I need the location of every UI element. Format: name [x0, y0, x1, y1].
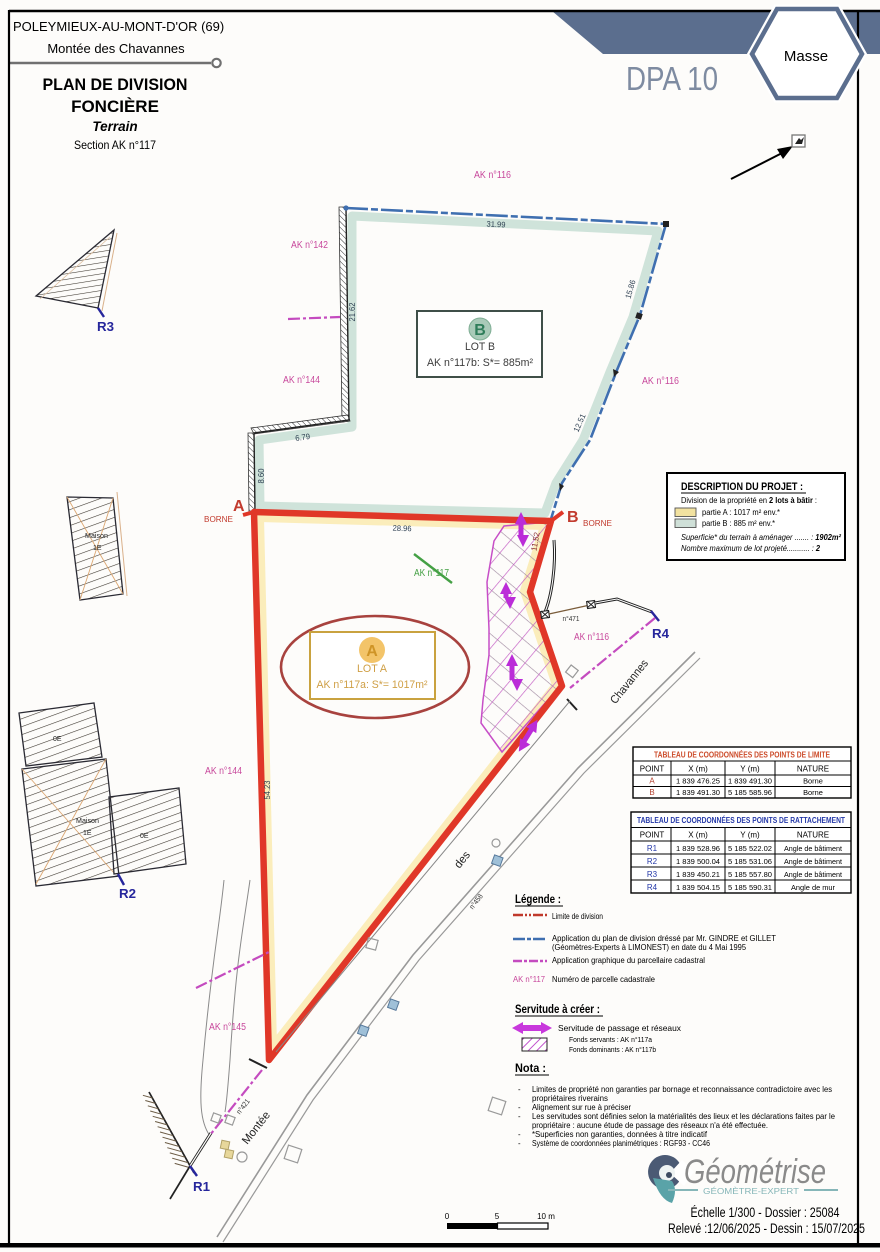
- svg-text:R1: R1: [193, 1179, 210, 1194]
- svg-text:POINT: POINT: [640, 765, 665, 774]
- svg-text:Système de coordonnées planimé: Système de coordonnées planimétriques : …: [532, 1139, 710, 1148]
- svg-text:Terrain: Terrain: [92, 119, 137, 134]
- svg-text:1 839 504.15: 1 839 504.15: [676, 883, 720, 892]
- svg-text:*Superficies non garanties, do: *Superficies non garanties, données à ti…: [532, 1130, 708, 1139]
- svg-text:Y (m): Y (m): [740, 831, 760, 840]
- svg-text:Nota :: Nota :: [515, 1063, 546, 1075]
- svg-text:R3: R3: [647, 870, 658, 879]
- svg-text:AK n°116: AK n°116: [474, 170, 511, 181]
- svg-text:31.99: 31.99: [486, 220, 506, 230]
- svg-text:Angle de bâtiment: Angle de bâtiment: [784, 857, 842, 866]
- svg-text:(Géomètres-Experts à LIMONEST): (Géomètres-Experts à LIMONEST) en date d…: [552, 943, 747, 952]
- svg-text:AK n°145: AK n°145: [209, 1022, 246, 1033]
- svg-text:Servitude à créer :: Servitude à créer :: [515, 1004, 600, 1016]
- svg-text:Angle de bâtiment: Angle de bâtiment: [784, 870, 842, 879]
- svg-text:Fonds dominants : AK n°117b: Fonds dominants : AK n°117b: [569, 1045, 656, 1054]
- svg-text:-: -: [518, 1130, 521, 1139]
- svg-text:LOT B: LOT B: [465, 341, 495, 353]
- svg-text:AK n°142: AK n°142: [291, 240, 328, 251]
- svg-text:R4: R4: [647, 883, 658, 892]
- svg-text:AK n°116: AK n°116: [574, 632, 609, 643]
- svg-text:AK n°144: AK n°144: [283, 375, 320, 386]
- svg-text:0E: 0E: [53, 736, 62, 743]
- svg-text:1 839 528.96: 1 839 528.96: [676, 844, 720, 853]
- svg-text:54.23: 54.23: [263, 780, 272, 800]
- svg-text:AK n°117a: S*= 1017m²: AK n°117a: S*= 1017m²: [317, 679, 428, 691]
- svg-text:X (m): X (m): [688, 765, 708, 774]
- svg-text:NATURE: NATURE: [797, 765, 829, 774]
- svg-text:A: A: [649, 777, 655, 786]
- svg-text:Masse: Masse: [784, 48, 828, 65]
- svg-text:partie A : 1017 m² env.*: partie A : 1017 m² env.*: [702, 508, 780, 517]
- svg-text:1 839 500.04: 1 839 500.04: [676, 857, 720, 866]
- svg-text:POINT: POINT: [640, 831, 665, 840]
- svg-text:Légende :: Légende :: [515, 894, 561, 906]
- svg-text:10 m: 10 m: [537, 1212, 555, 1221]
- svg-text:Limites de propriété non garan: Limites de propriété non garanties par b…: [532, 1085, 832, 1094]
- svg-text:5 185 531.06: 5 185 531.06: [728, 857, 772, 866]
- svg-text:1E: 1E: [93, 545, 102, 552]
- svg-text:Limite de division: Limite de division: [552, 912, 603, 921]
- svg-text:28.96: 28.96: [392, 524, 412, 534]
- svg-text:Section AK n°117: Section AK n°117: [74, 138, 156, 152]
- svg-text:LOT A: LOT A: [357, 663, 388, 675]
- svg-text:R1: R1: [647, 844, 658, 853]
- svg-text:AK n°117: AK n°117: [414, 568, 449, 579]
- svg-text:-: -: [518, 1085, 521, 1094]
- svg-text:Division de la propriété en 2: Division de la propriété en 2 lots à bât…: [681, 496, 817, 505]
- svg-text:1 839 450.21: 1 839 450.21: [676, 870, 720, 879]
- svg-text:partie B : 885 m² env.*: partie B : 885 m² env.*: [702, 519, 775, 528]
- svg-text:Maison: Maison: [85, 533, 108, 540]
- svg-text:0E: 0E: [140, 833, 149, 840]
- svg-text:FONCIÈRE: FONCIÈRE: [71, 97, 159, 116]
- svg-text:A: A: [233, 498, 245, 515]
- svg-text:PLAN DE DIVISION: PLAN DE DIVISION: [43, 75, 188, 94]
- svg-text:DPA 10: DPA 10: [626, 60, 718, 97]
- svg-text:Angle de bâtiment: Angle de bâtiment: [784, 844, 842, 853]
- svg-text:B: B: [649, 788, 654, 797]
- svg-text:Borne: Borne: [803, 788, 823, 797]
- svg-text:5 185 522.02: 5 185 522.02: [728, 844, 772, 853]
- svg-text:POLEYMIEUX-AU-MONT-D'OR (69): POLEYMIEUX-AU-MONT-D'OR (69): [13, 19, 224, 34]
- svg-text:5 185 590.31: 5 185 590.31: [728, 883, 772, 892]
- svg-text:-: -: [518, 1103, 521, 1112]
- svg-text:1 839 491.30: 1 839 491.30: [676, 788, 720, 797]
- svg-text:5 185 585.96: 5 185 585.96: [728, 788, 772, 797]
- svg-text:Les servitudes sont définies s: Les servitudes sont définies selon la ma…: [532, 1112, 835, 1121]
- svg-text:Relevé :12/06/2025 - Dessin :: Relevé :12/06/2025 - Dessin : 15/07/2025: [668, 1221, 865, 1236]
- svg-text:1 839 491.30: 1 839 491.30: [728, 777, 772, 786]
- svg-text:n°471: n°471: [563, 614, 580, 623]
- svg-text:-: -: [518, 1112, 521, 1121]
- svg-text:Maison: Maison: [76, 818, 99, 825]
- svg-text:R2: R2: [119, 886, 136, 901]
- svg-text:0: 0: [445, 1212, 450, 1221]
- svg-text:TABLEAU DE COORDONNÉES DES POI: TABLEAU DE COORDONNÉES DES POINTS DE LIM…: [654, 751, 831, 760]
- svg-text:5: 5: [495, 1212, 500, 1221]
- svg-text:DESCRIPTION DU PROJET :: DESCRIPTION DU PROJET :: [681, 481, 803, 493]
- svg-text:BORNE: BORNE: [204, 514, 233, 524]
- svg-text:A: A: [366, 643, 378, 660]
- svg-text:NATURE: NATURE: [797, 831, 829, 840]
- svg-text:1 839 476.25: 1 839 476.25: [676, 777, 720, 786]
- svg-text:Borne: Borne: [803, 777, 823, 786]
- svg-text:Servitude de passage et réseau: Servitude de passage et réseaux: [558, 1023, 682, 1033]
- svg-text:AK n°144: AK n°144: [205, 766, 242, 777]
- svg-text:Y (m): Y (m): [740, 765, 760, 774]
- svg-text:Nombre maximum de lot projeté.: Nombre maximum de lot projeté...........…: [681, 544, 821, 553]
- svg-text:AK n°117b: S*= 885m²: AK n°117b: S*= 885m²: [427, 357, 533, 369]
- svg-text:TABLEAU DE COORDONNÉES DES POI: TABLEAU DE COORDONNÉES DES POINTS DE RAT…: [637, 816, 845, 825]
- svg-text:propriétaire : aucune étude de: propriétaire : aucune étude de passage d…: [532, 1121, 768, 1130]
- svg-text:AK n°116: AK n°116: [642, 376, 679, 387]
- svg-text:BORNE: BORNE: [583, 518, 612, 528]
- svg-text:Alignement sur rue à préciser: Alignement sur rue à préciser: [532, 1103, 631, 1112]
- svg-text:Fonds servants : AK n°117a: Fonds servants : AK n°117a: [569, 1035, 652, 1044]
- svg-text:21.62: 21.62: [348, 302, 357, 322]
- svg-text:-: -: [518, 1139, 521, 1148]
- svg-text:B: B: [567, 509, 579, 526]
- svg-text:GÉOMÈTRE-EXPERT: GÉOMÈTRE-EXPERT: [703, 1186, 799, 1196]
- svg-text:Application du plan de divisio: Application du plan de division dréssé p…: [552, 934, 776, 943]
- svg-text:B: B: [474, 322, 486, 339]
- svg-text:1E: 1E: [83, 830, 92, 837]
- svg-text:Application graphique du parce: Application graphique du parcellaire cad…: [552, 956, 705, 965]
- svg-text:R3: R3: [97, 319, 114, 334]
- svg-text:R4: R4: [652, 626, 670, 641]
- svg-text:AK n°117: AK n°117: [513, 975, 545, 984]
- svg-text:Angle de mur: Angle de mur: [791, 883, 836, 892]
- svg-text:Superficie* du terrain à aména: Superficie* du terrain à aménager ......…: [681, 533, 841, 542]
- svg-text:5 185 557.80: 5 185 557.80: [728, 870, 772, 879]
- svg-text:X (m): X (m): [688, 831, 708, 840]
- svg-text:propriétaires riverains: propriétaires riverains: [532, 1094, 608, 1103]
- svg-text:Échelle 1/300 - Dossier : 2508: Échelle 1/300 - Dossier : 25084: [691, 1205, 840, 1220]
- svg-text:8.60: 8.60: [257, 468, 266, 484]
- svg-text:Montée des Chavannes: Montée des Chavannes: [47, 41, 185, 56]
- svg-text:R2: R2: [647, 857, 658, 866]
- svg-text:Numéro de parcelle cadastrale: Numéro de parcelle cadastrale: [552, 975, 655, 984]
